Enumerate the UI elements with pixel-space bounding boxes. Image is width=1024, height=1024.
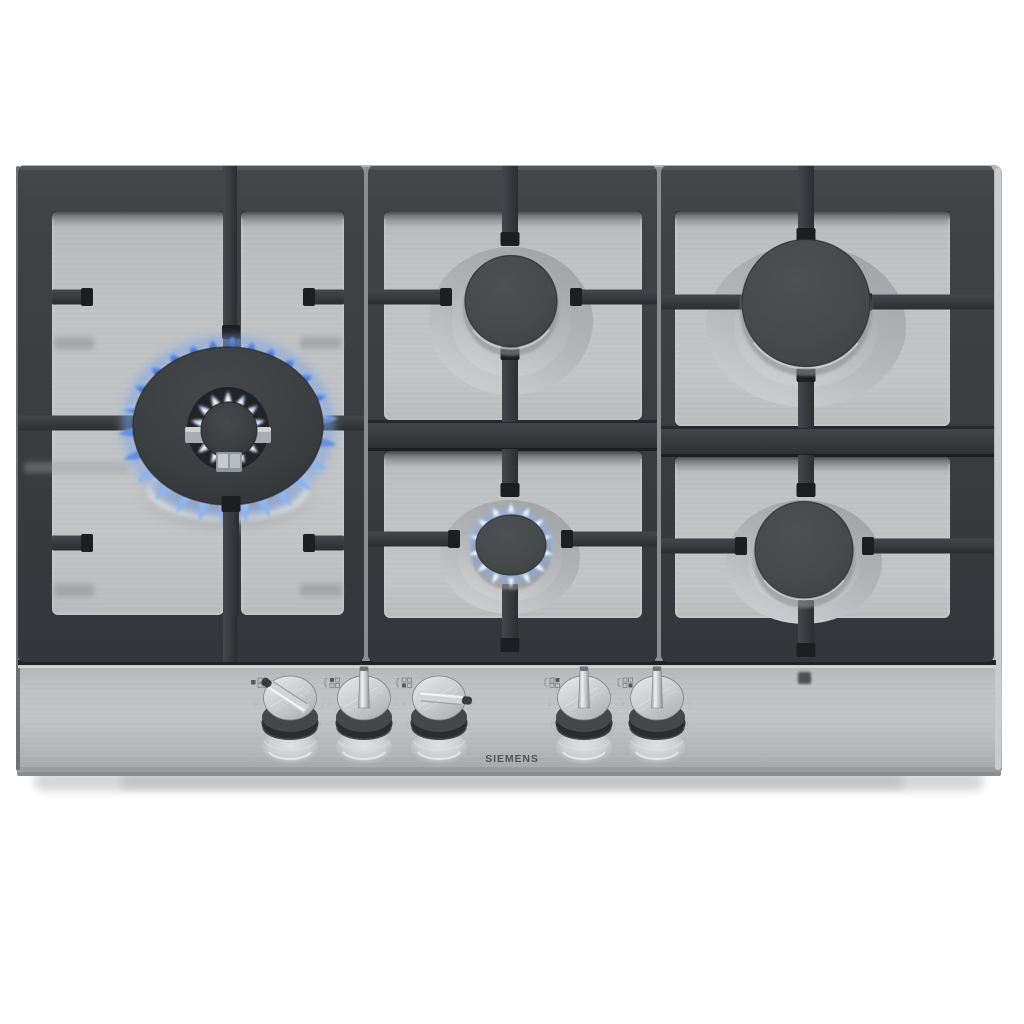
svg-text:SIEMENS: SIEMENS	[485, 753, 539, 765]
